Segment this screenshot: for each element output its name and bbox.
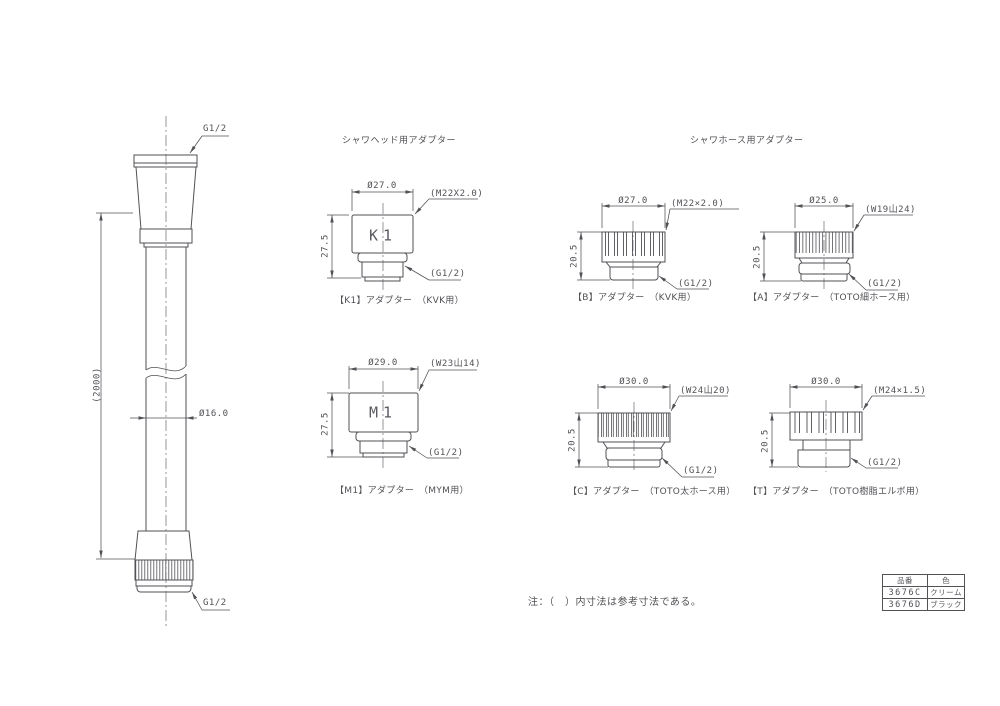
- k1-height-label: 27.5: [322, 234, 331, 258]
- hose-diameter-label: Ø16.0: [199, 410, 229, 419]
- t-thread-label: (M24×1.5): [873, 387, 926, 396]
- adapter-a-drawing: [760, 203, 913, 291]
- c-thread-label: (W24山20): [680, 387, 731, 396]
- hose-top-thread-leader: [190, 136, 202, 153]
- c-height-label: 20.5: [569, 428, 578, 452]
- t-diameter-label: Ø30.0: [811, 378, 841, 387]
- a-height-label: 20.5: [754, 245, 763, 269]
- section-title-head-adapters: シャワヘッド用アダプター: [342, 137, 456, 146]
- hose-top-thread-label: G1/2: [203, 125, 227, 134]
- adapter-c-drawing: [575, 384, 728, 477]
- hose-bottom-thread-leader: [192, 592, 202, 610]
- part-number-cell: 3676C: [883, 587, 928, 599]
- hose-top-flange: [134, 155, 197, 167]
- c-caption: 【C】アダプター （TOTO太ホース用）: [568, 488, 736, 497]
- a-diameter-label: Ø25.0: [809, 197, 839, 206]
- color-cell: ブラック: [928, 599, 965, 611]
- m1-diameter-label: Ø29.0: [368, 359, 398, 368]
- b-height-label: 20.5: [571, 244, 580, 268]
- hose-nut-body: [135, 531, 192, 560]
- m1-thread-label: (W23山14): [430, 360, 481, 369]
- table-row: 3676C クリーム: [883, 587, 965, 599]
- a-outlet-label: (G1/2): [867, 280, 903, 289]
- m1-outlet-label: (G1/2): [428, 449, 464, 458]
- table-row: 3676D ブラック: [883, 599, 965, 611]
- reference-dimension-note: 注：（ ）内寸法は参考寸法である。: [528, 598, 701, 608]
- t-outlet-label: (G1/2): [867, 459, 903, 468]
- b-diameter-label: Ø27.0: [618, 197, 648, 206]
- table-header-row: 品番 色: [883, 575, 965, 587]
- m1-body-label: M1: [369, 406, 397, 421]
- t-caption: 【T】アダプター （TOTO樹脂エルボ用）: [748, 488, 924, 497]
- k1-thread-label: (M22X2.0): [430, 190, 483, 199]
- hose-length-label: (2000): [94, 367, 103, 403]
- hose-bottom-thread-label: G1/2: [203, 599, 227, 608]
- parts-table: 品番 色 3676C クリーム 3676D ブラック: [882, 574, 965, 611]
- k1-diameter-label: Ø27.0: [367, 182, 397, 191]
- section-title-hose-adapters: シャワホース用アダプター: [690, 137, 804, 146]
- part-number-cell: 3676D: [883, 599, 928, 611]
- m1-caption: 【M1】アダプター （MYM用）: [335, 487, 469, 496]
- k1-body-label: K1: [369, 229, 397, 244]
- drawing-sheet: .ol{fill:none;stroke:#515156;stroke-widt…: [0, 0, 1000, 706]
- color-cell: クリーム: [928, 587, 965, 599]
- b-thread-label: (M22×2.0): [671, 200, 724, 209]
- b-outlet-label: (G1/2): [678, 280, 714, 289]
- adapter-b-drawing: [577, 203, 739, 291]
- b-caption: 【B】アダプター （KVK用）: [573, 294, 696, 303]
- m1-height-label: 27.5: [322, 412, 331, 436]
- c-outlet-label: (G1/2): [683, 467, 719, 476]
- hose-nut-knurl: [135, 560, 193, 580]
- a-thread-label: (W19山24): [865, 206, 916, 215]
- t-height-label: 20.5: [762, 429, 771, 453]
- c-diameter-label: Ø30.0: [619, 378, 649, 387]
- k1-caption: 【K1】アダプター （KVK用）: [335, 297, 464, 306]
- header-part-number: 品番: [883, 575, 928, 587]
- hose-drawing: [96, 116, 230, 628]
- k1-outlet-label: (G1/2): [430, 270, 466, 279]
- a-caption: 【A】アダプター （TOTO細ホース用）: [748, 294, 915, 303]
- technical-drawing-lineart: .ol{fill:none;stroke:#515156;stroke-widt…: [0, 0, 1000, 706]
- header-color: 色: [928, 575, 965, 587]
